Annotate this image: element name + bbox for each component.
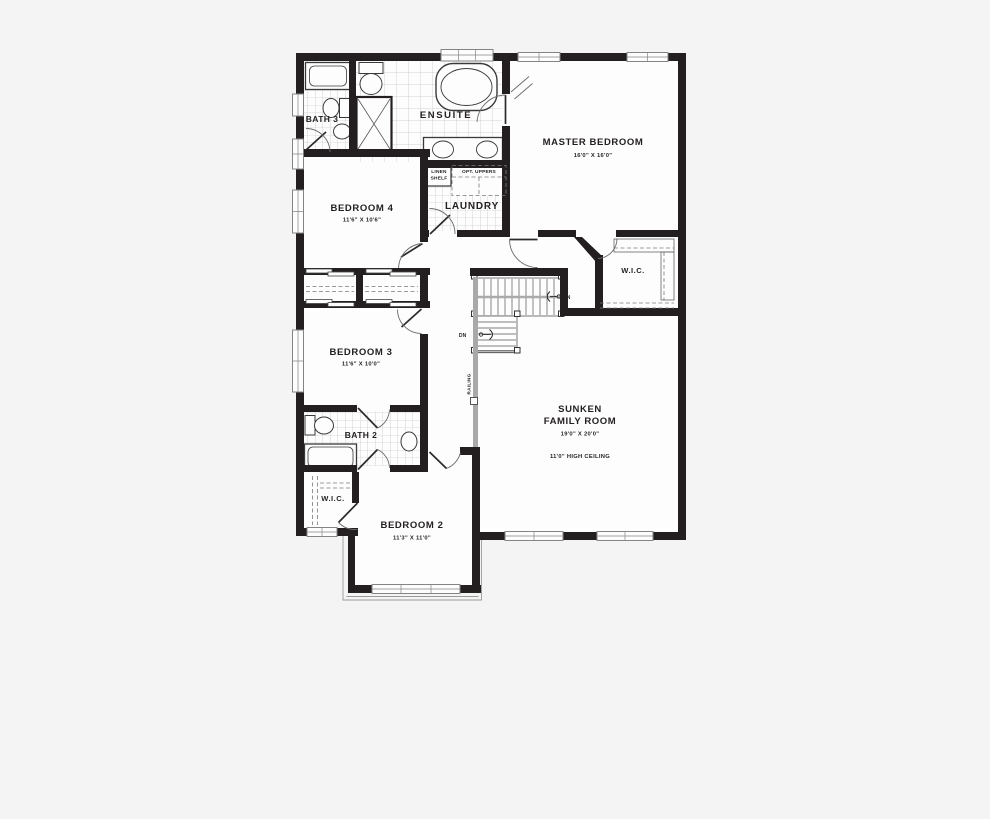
bath2-label: BATH 2 xyxy=(345,430,377,440)
laundry-label: LAUNDRY xyxy=(445,201,499,212)
wic-bedroom2-label: W.I.C. xyxy=(321,494,344,503)
railing-label: RAILING xyxy=(467,373,472,394)
family-room-label-line1: SUNKEN xyxy=(558,404,602,415)
floor-plan-drawing: DN DN RAILING BATH 3 ENSUITE MASTER BEDR… xyxy=(0,0,990,819)
family-room-window-right xyxy=(597,532,653,541)
ensuite-vanity xyxy=(424,138,503,162)
master-bedroom-dims: 16'0" X 16'0" xyxy=(574,153,613,159)
bedroom3-window xyxy=(293,330,304,392)
ensuite-toilet xyxy=(359,63,383,95)
dn-lower-label: DN xyxy=(459,333,467,339)
bath3-label: BATH 3 xyxy=(306,114,338,124)
bedroom4-window xyxy=(293,190,304,233)
bedroom3-dims: 11'6" X 10'0" xyxy=(342,362,380,368)
master-bedroom-label: MASTER BEDROOM xyxy=(543,137,644,148)
bath3-sink xyxy=(334,124,351,139)
family-room-label-line2: FAMILY ROOM xyxy=(544,416,617,427)
family-room-ceiling-note: 11'0" HIGH CEILING xyxy=(550,454,610,460)
opt-uppers-label: OPT. UPPERS xyxy=(462,169,497,175)
bedroom2-bay-window xyxy=(372,585,460,594)
ensuite-label: ENSUITE xyxy=(420,110,472,121)
bath2-sink xyxy=(401,432,417,451)
family-room-window-left xyxy=(505,532,563,541)
floor-plan-page: DN DN RAILING BATH 3 ENSUITE MASTER BEDR… xyxy=(0,0,990,819)
family-room-dims: 19'0" X 20'0" xyxy=(561,432,600,438)
ensuite-shower xyxy=(357,97,392,151)
master-window-right xyxy=(627,53,668,62)
linen-shelf-label-line2: SHELF xyxy=(431,176,448,182)
linen-shelf-label-line1: LINEN xyxy=(431,169,447,175)
bedroom4-dims: 11'6" X 10'6" xyxy=(343,218,381,224)
master-window-left xyxy=(518,53,560,62)
bath3-window xyxy=(293,94,304,116)
bedroom2-dims: 11'3" X 11'0" xyxy=(393,536,431,542)
bath3-tub xyxy=(306,63,351,90)
dn-upper-label: DN xyxy=(563,295,571,301)
bedroom3-label: BEDROOM 3 xyxy=(330,347,393,358)
bath2-toilet xyxy=(305,416,334,436)
bedroom2-label: BEDROOM 2 xyxy=(381,520,444,531)
ensuite-tub xyxy=(436,64,497,111)
wic-master-label: W.I.C. xyxy=(621,266,644,275)
wic2-window xyxy=(307,528,337,537)
bedroom4-label: BEDROOM 4 xyxy=(331,203,394,214)
bath3-bedroom4-window xyxy=(293,139,304,169)
ensuite-window xyxy=(441,50,493,62)
